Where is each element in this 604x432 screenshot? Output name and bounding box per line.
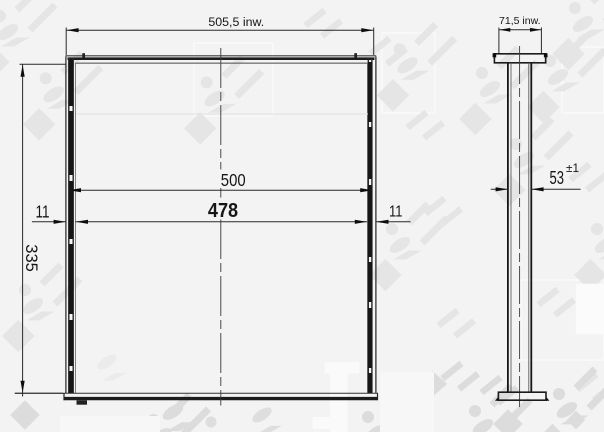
svg-text:11: 11 (389, 204, 403, 221)
svg-text:71,5 inw.: 71,5 inw. (499, 16, 541, 27)
svg-text:±1: ±1 (566, 161, 579, 175)
svg-text:11: 11 (36, 202, 50, 222)
svg-text:500: 500 (221, 170, 246, 190)
svg-text:335: 335 (22, 244, 41, 272)
svg-text:478: 478 (208, 200, 238, 222)
svg-text:53: 53 (550, 167, 565, 188)
svg-text:505,5 inw.: 505,5 inw. (208, 15, 264, 29)
